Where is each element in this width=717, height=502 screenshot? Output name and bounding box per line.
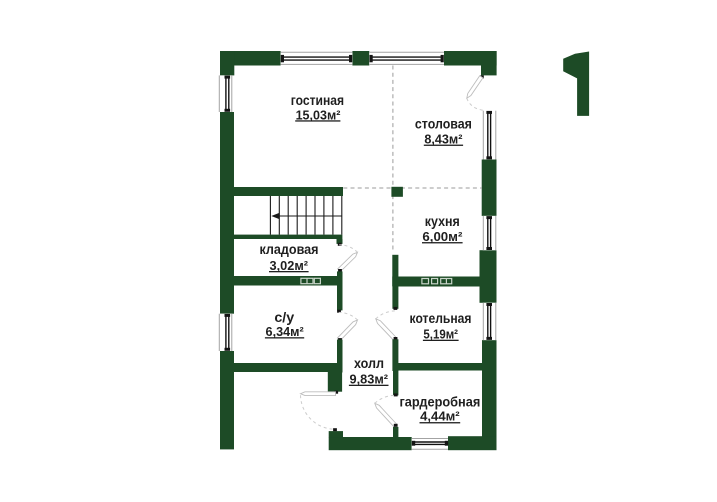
svg-text:гардеробная: гардеробная <box>399 393 480 409</box>
svg-text:6,00м²: 6,00м² <box>422 229 463 244</box>
svg-text:гостиная: гостиная <box>291 92 344 108</box>
svg-text:с/у: с/у <box>274 309 294 325</box>
svg-text:6,34м²: 6,34м² <box>266 324 305 339</box>
svg-text:9,83м²: 9,83м² <box>350 372 389 387</box>
svg-text:кладовая: кладовая <box>259 241 318 257</box>
svg-text:8,43м²: 8,43м² <box>424 132 463 147</box>
svg-text:котельная: котельная <box>410 310 472 326</box>
svg-text:столовая: столовая <box>415 115 472 131</box>
svg-text:5,19м²: 5,19м² <box>423 327 458 342</box>
svg-text:холл: холл <box>354 355 384 371</box>
svg-text:кухня: кухня <box>425 213 460 229</box>
svg-text:4,44м²: 4,44м² <box>420 409 460 424</box>
svg-text:3,02м²: 3,02м² <box>270 258 309 273</box>
